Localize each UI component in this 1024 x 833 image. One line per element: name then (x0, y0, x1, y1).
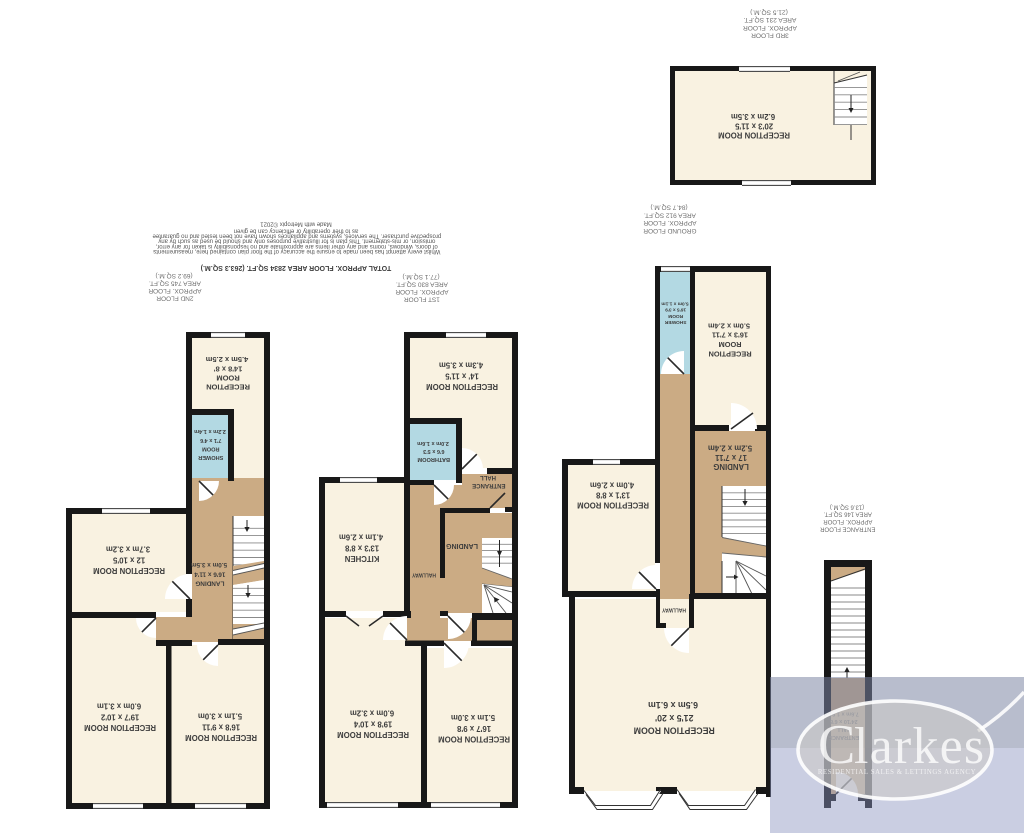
svg-text:larkes: larkes (854, 718, 985, 775)
svg-text:KITCHEN 13'3 x 8'8 4.1m x 2.6m: KITCHEN 13'3 x 8'8 4.1m x 2.6m (339, 533, 383, 563)
svg-text:LANDING 16'6 x 11'4 5.0m x 3.5: LANDING 16'6 x 11'4 5.0m x 3.5m (191, 561, 228, 587)
svg-text:RECEPTION ROOM 16'3 x 7'11 5.0: RECEPTION ROOM 16'3 x 7'11 5.0m x 2.4m (706, 321, 751, 358)
svg-text:LANDING: LANDING (446, 542, 478, 549)
svg-text:Made with Metropix ©2021: Made with Metropix ©2021 (260, 221, 332, 228)
svg-text:HALLWAY: HALLWAY (411, 571, 436, 577)
svg-text:HALLWAY: HALLWAY (661, 606, 686, 612)
svg-text:RESIDENTIAL SALES & LETTINGS A: RESIDENTIAL SALES & LETTINGS AGENCY (818, 769, 976, 776)
svg-text:TOTAL APPROX. FLOOR AREA 2834: TOTAL APPROX. FLOOR AREA 2834 SQ.FT. (26… (201, 264, 392, 271)
svg-text:C: C (818, 714, 855, 776)
svg-text:LANDING 17 x 7'11 5.2m x 2.4m: LANDING 17 x 7'11 5.2m x 2.4m (708, 443, 752, 471)
